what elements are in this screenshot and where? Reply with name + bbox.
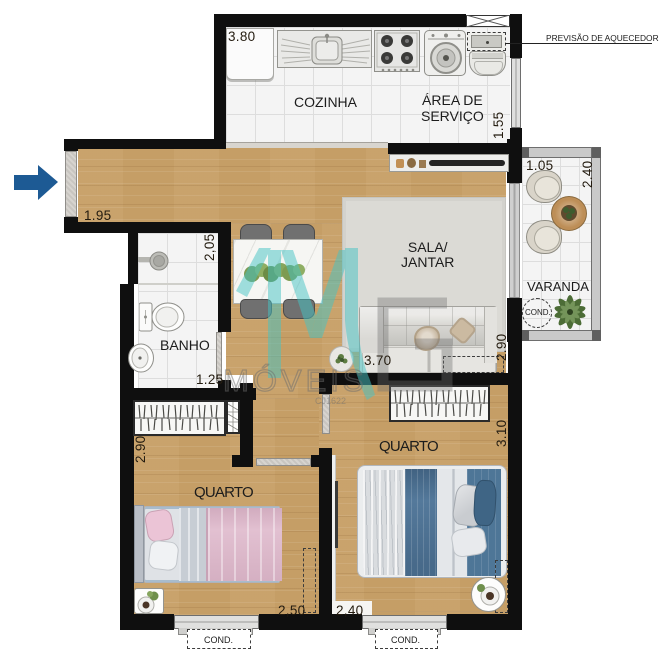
svg-text:MÓVEIS: MÓVEIS xyxy=(223,363,368,398)
svg-text:CJ1622: CJ1622 xyxy=(315,396,346,406)
